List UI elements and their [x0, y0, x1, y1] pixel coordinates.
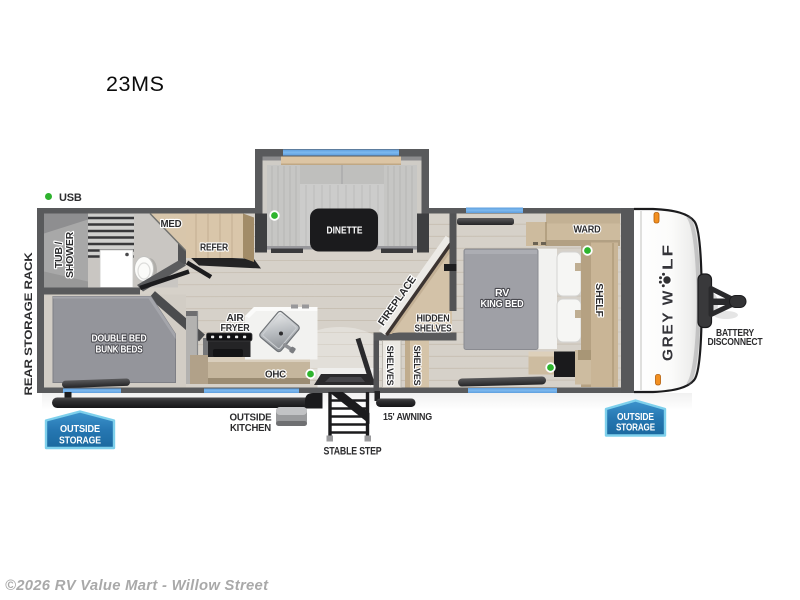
svg-text:STABLE STEP: STABLE STEP [324, 446, 382, 458]
svg-text:SHELVES: SHELVES [385, 346, 396, 386]
svg-text:OHC: OHC [265, 370, 287, 381]
svg-text:SHOWER: SHOWER [64, 231, 76, 278]
svg-text:OUTSIDE: OUTSIDE [230, 413, 272, 424]
svg-text:23MS: 23MS [106, 72, 165, 96]
svg-text:STORAGE: STORAGE [616, 423, 655, 434]
svg-text:GREY W: GREY W [660, 289, 677, 361]
svg-text:15' AWNING: 15' AWNING [383, 412, 432, 423]
svg-text:USB: USB [59, 192, 82, 204]
svg-text:STORAGE: STORAGE [59, 436, 101, 447]
svg-text:BUNK BEDS: BUNK BEDS [96, 344, 143, 356]
svg-text:REAR STORAGE RACK: REAR STORAGE RACK [23, 252, 35, 395]
svg-text:SHELF: SHELF [593, 283, 605, 317]
svg-text:KITCHEN: KITCHEN [230, 423, 271, 434]
svg-text:SHELVES: SHELVES [415, 324, 452, 335]
svg-text:DINETTE: DINETTE [327, 226, 363, 237]
svg-text:SHELVES: SHELVES [412, 346, 423, 386]
svg-text:OUTSIDE: OUTSIDE [617, 412, 654, 423]
svg-text:WARD: WARD [574, 225, 601, 236]
svg-text:OUTSIDE: OUTSIDE [60, 424, 100, 435]
svg-text:REFER: REFER [200, 243, 229, 254]
svg-text:FRYER: FRYER [221, 323, 251, 334]
svg-text:LF: LF [660, 243, 677, 270]
svg-text:MED: MED [161, 219, 182, 230]
svg-text:KING BED: KING BED [481, 298, 525, 310]
svg-text:©2026 RV Value Mart - Willow S: ©2026 RV Value Mart - Willow Street [5, 578, 269, 594]
svg-text:DISCONNECT: DISCONNECT [708, 337, 763, 348]
